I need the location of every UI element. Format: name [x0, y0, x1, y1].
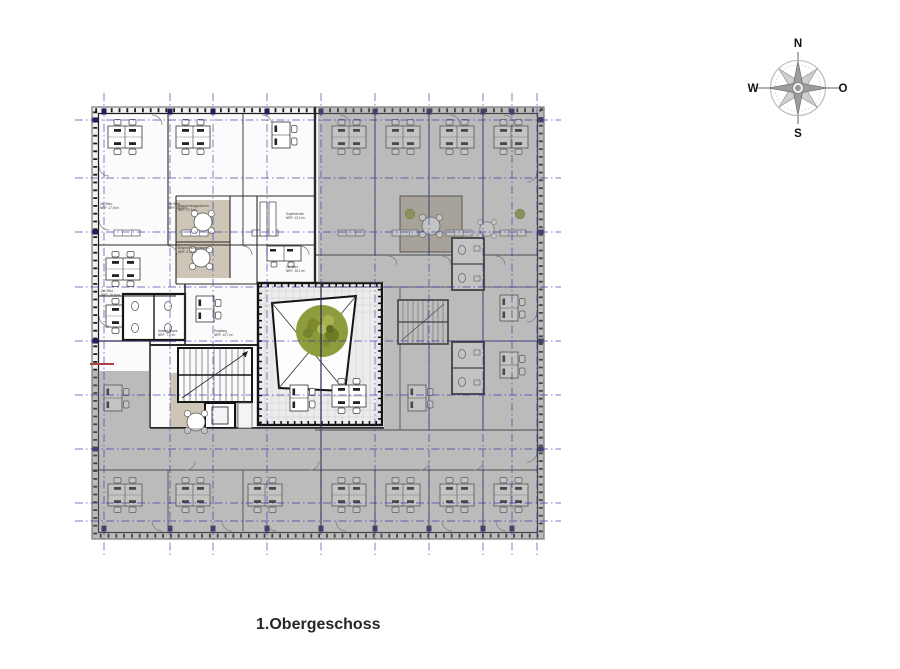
room-area: NRF: 13,2 m²	[286, 216, 305, 220]
room-area: NRF: 15,1 m²	[286, 269, 305, 273]
room-area: NRF: 27,6 m²	[178, 250, 197, 254]
sideboard	[114, 230, 140, 236]
room-area: NRF: 7,6 m²	[158, 333, 175, 337]
compass-rose: N O S W	[748, 38, 848, 140]
room-area: NRF: 10,7 m²	[214, 333, 233, 337]
east-label: O	[839, 83, 848, 95]
staircase-main	[178, 348, 252, 402]
west-label: W	[748, 83, 759, 95]
north-label: N	[794, 38, 802, 50]
floor-plan-page: 2er Büro NRF: 17,5 m² 2er Büro NRF: 16,6…	[0, 0, 900, 669]
room-area: NRF: 27,6 m²	[178, 208, 197, 212]
courtyard-tree	[296, 305, 348, 357]
page-title: 1.Obergeschoss	[256, 616, 381, 633]
room-area: NRF: 17,5 m²	[100, 206, 119, 210]
south-label: S	[794, 128, 802, 140]
floor-plan-drawing: 2er Büro NRF: 17,5 m² 2er Büro NRF: 16,6…	[0, 0, 900, 669]
meeting-table	[191, 210, 214, 233]
elevator	[205, 403, 252, 428]
wc-block-west	[123, 294, 185, 340]
